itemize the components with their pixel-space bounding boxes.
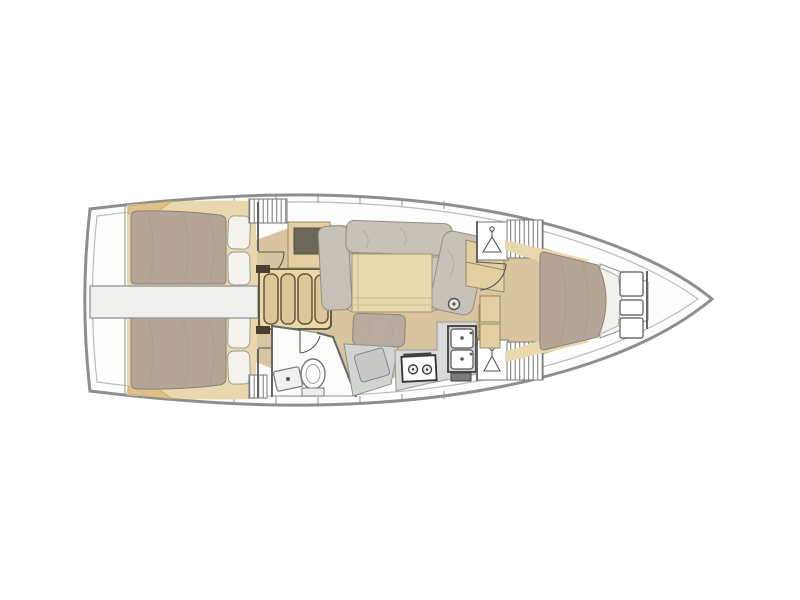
saloon-table — [352, 254, 432, 312]
stove — [401, 352, 436, 382]
fwd-island-berth — [540, 252, 606, 350]
aft-port-locker-stripes — [249, 199, 287, 223]
floor-plan-canvas — [0, 0, 800, 600]
step-tread-2 — [281, 274, 295, 324]
engine-compartment — [90, 286, 258, 318]
aft-stbd-double-berth — [131, 316, 226, 389]
toilet — [301, 359, 325, 396]
sailboat-floor-plan — [0, 0, 800, 600]
steps-cap-bottom — [256, 326, 270, 334]
fwd-headboard-shelves — [620, 272, 643, 338]
aft-stbd-pillow-1 — [228, 315, 251, 348]
steps-cap-top — [256, 265, 270, 273]
aft-port-pillow-1 — [227, 216, 250, 250]
fwd-bench-1 — [480, 296, 500, 322]
galley-double-sink — [448, 326, 476, 372]
aft-port-pillow-2 — [228, 252, 251, 285]
hanging-locker-port — [477, 222, 508, 260]
companionway-steps — [256, 265, 331, 334]
settee-bench — [352, 313, 405, 347]
sofa-back-cushion — [345, 220, 452, 256]
aft-stbd-pillow-2 — [227, 351, 250, 385]
fwd-bench-2 — [480, 324, 500, 348]
mast-post — [449, 299, 460, 310]
step-tread-1 — [264, 274, 278, 324]
under-sink-locker — [451, 373, 471, 381]
step-tread-3 — [298, 274, 312, 324]
